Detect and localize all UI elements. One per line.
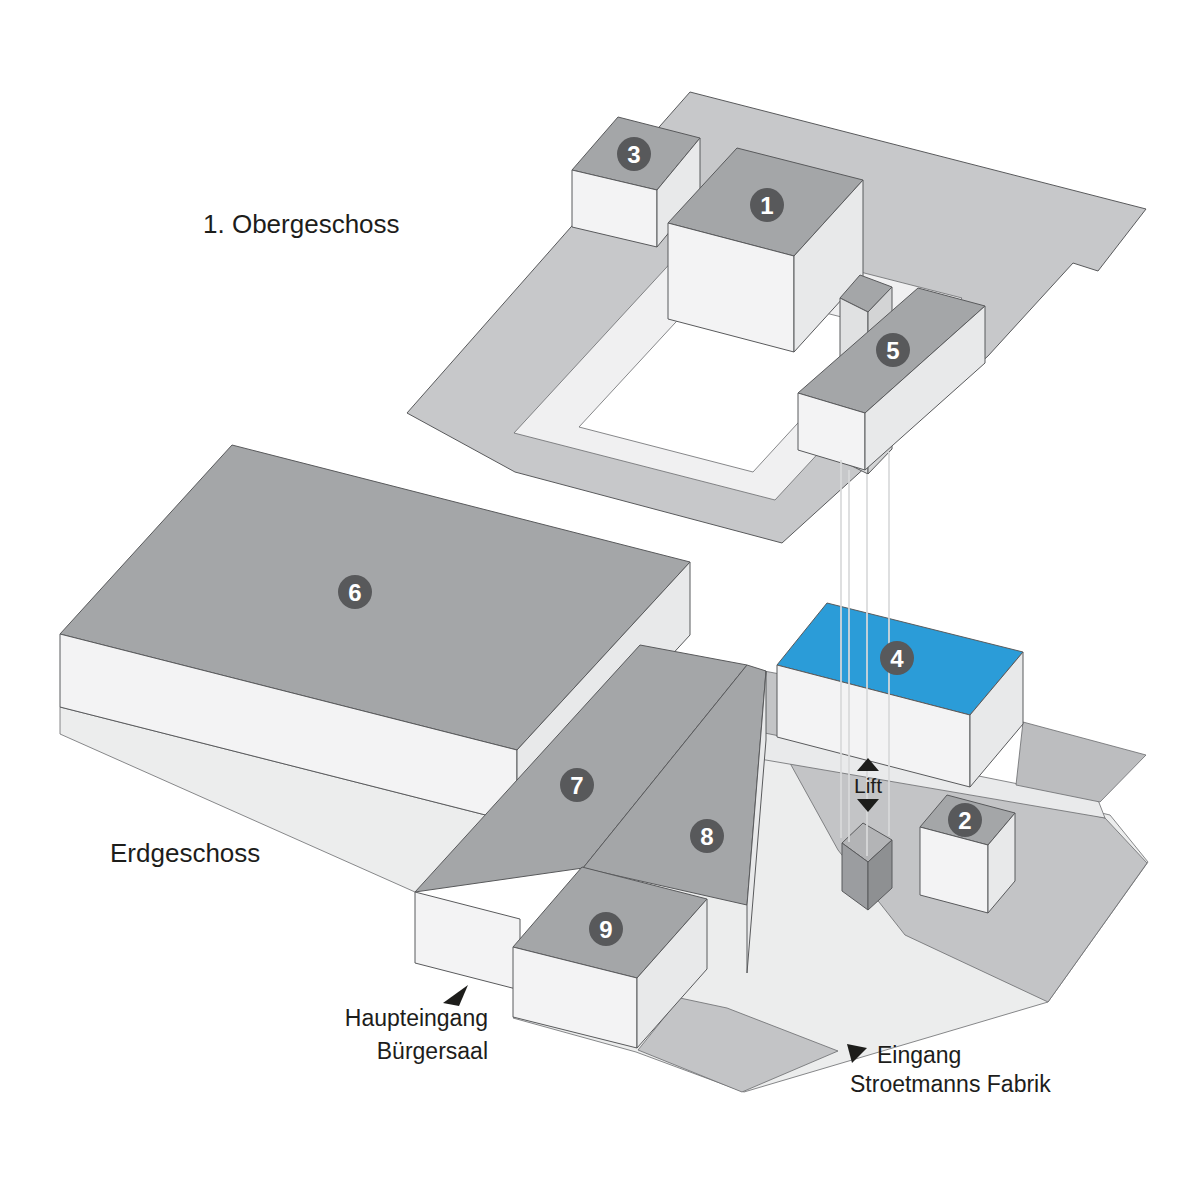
badge-section-9[interactable]: 9 [589,912,623,946]
badge-number: 8 [700,823,713,850]
fabrik-entrance-label-line1: Eingang [877,1042,961,1068]
badge-section-6[interactable]: 6 [338,575,372,609]
badge-section-1[interactable]: 1 [750,188,784,222]
badge-section-5[interactable]: 5 [876,333,910,367]
fabrik-entrance-label-line2: Stroetmanns Fabrik [850,1071,1051,1097]
upper-floor-label: 1. Obergeschoss [203,209,400,239]
badge-section-4[interactable]: 4 [880,641,914,675]
badge-number: 2 [958,807,971,834]
badge-section-3[interactable]: 3 [617,137,651,171]
badge-section-7[interactable]: 7 [560,768,594,802]
badge-number: 7 [570,772,583,799]
main-entrance-label-line2: Bürgersaal [377,1038,488,1064]
badge-number: 6 [348,579,361,606]
upper-floor-group [407,92,1146,543]
ground-floor-group [60,445,1148,1092]
badge-number: 9 [599,916,612,943]
badge-section-2[interactable]: 2 [948,803,982,837]
floorplan-page: 1 3 5 4 6 7 8 9 [0,0,1200,1200]
main-entrance-label-line1: Haupteingang [345,1005,488,1031]
badge-number: 1 [760,192,773,219]
lift-label: Lift [854,774,882,797]
badge-number: 4 [890,645,904,672]
building-7-front-face[interactable] [415,892,520,990]
ground-floor-label: Erdgeschoss [110,838,260,868]
badge-number: 5 [886,337,899,364]
main-entrance-arrow-icon [443,985,468,1006]
badge-number: 3 [627,141,640,168]
building-isometric-diagram: 1 3 5 4 6 7 8 9 [0,0,1200,1200]
badge-section-8[interactable]: 8 [690,819,724,853]
